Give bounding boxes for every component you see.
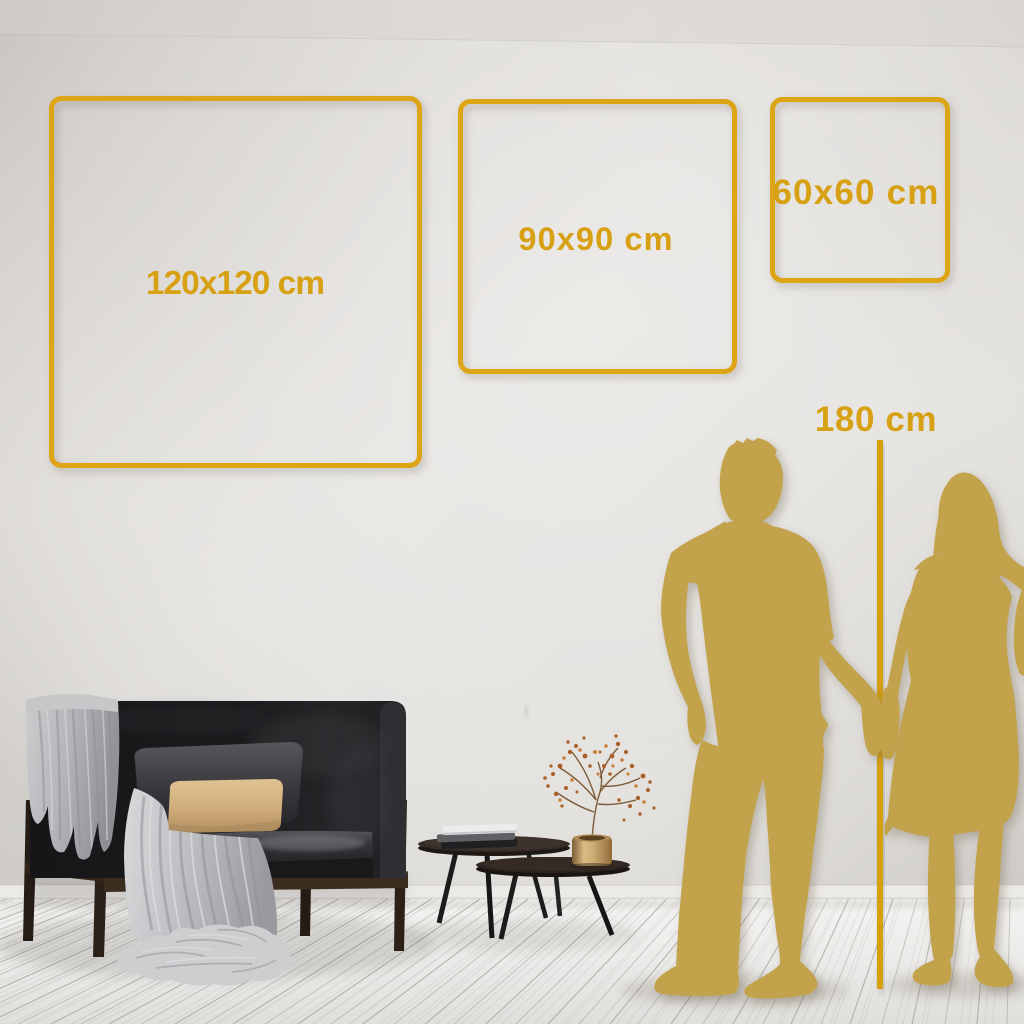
svg-text:180 cm: 180 cm: [815, 400, 937, 439]
svg-text:90x90 cm: 90x90 cm: [518, 221, 673, 257]
svg-text:60x60 cm: 60x60 cm: [772, 173, 939, 212]
svg-text:120x120 cm: 120x120 cm: [146, 265, 324, 302]
